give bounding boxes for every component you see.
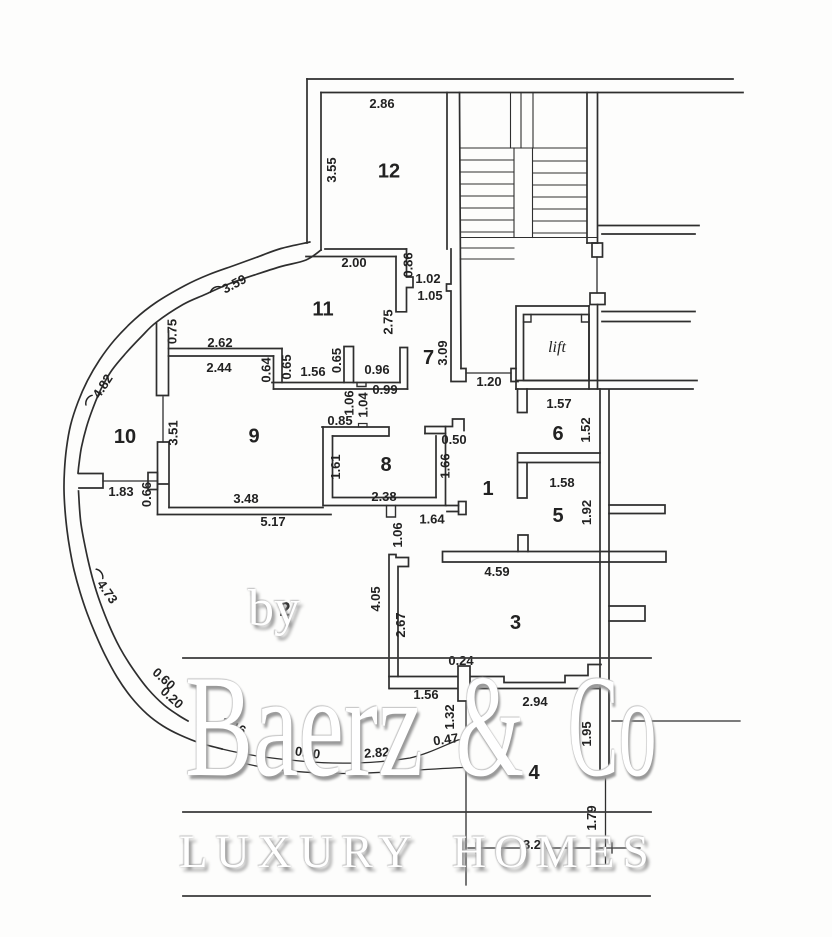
- svg-text:1.92: 1.92: [579, 500, 594, 525]
- svg-text:3.48: 3.48: [233, 491, 258, 506]
- svg-text:2.75: 2.75: [381, 309, 396, 334]
- svg-text:1.06: 1.06: [390, 522, 405, 547]
- svg-text:8: 8: [380, 454, 391, 476]
- svg-text:1.66: 1.66: [438, 453, 453, 478]
- svg-text:1.57: 1.57: [546, 396, 571, 411]
- svg-text:1.20: 1.20: [476, 374, 501, 389]
- svg-text:4.05: 4.05: [368, 586, 383, 611]
- svg-text:0.85: 0.85: [327, 413, 352, 428]
- svg-text:1.64: 1.64: [419, 512, 445, 527]
- svg-text:0.66: 0.66: [139, 482, 154, 507]
- svg-text:0.50: 0.50: [441, 432, 466, 447]
- svg-text:0.96: 0.96: [364, 362, 389, 377]
- svg-text:1.52: 1.52: [578, 417, 593, 442]
- svg-text:2.44: 2.44: [206, 360, 232, 375]
- svg-text:0.99: 0.99: [372, 382, 397, 397]
- svg-text:6: 6: [552, 423, 563, 445]
- svg-text:5.17: 5.17: [260, 514, 285, 529]
- svg-text:1.04: 1.04: [356, 392, 371, 418]
- svg-text:0.64: 0.64: [259, 357, 274, 383]
- svg-text:lift: lift: [548, 339, 566, 356]
- svg-text:0.86: 0.86: [401, 252, 416, 277]
- svg-text:⌒4.82: ⌒4.82: [82, 371, 116, 412]
- svg-text:3.51: 3.51: [166, 420, 181, 445]
- svg-text:0.20: 0.20: [158, 684, 187, 712]
- svg-text:1: 1: [482, 478, 493, 500]
- svg-text:0.75: 0.75: [165, 319, 180, 344]
- svg-text:1.02: 1.02: [415, 271, 440, 286]
- svg-text:2.00: 2.00: [341, 255, 366, 270]
- svg-text:⌒3.59: ⌒3.59: [207, 271, 249, 303]
- svg-text:2.86: 2.86: [369, 96, 394, 111]
- svg-text:7: 7: [423, 347, 434, 369]
- svg-text:2.94: 2.94: [522, 694, 548, 709]
- svg-text:1.56: 1.56: [300, 364, 325, 379]
- svg-text:⌒4.73: ⌒4.73: [86, 566, 121, 607]
- svg-text:11: 11: [312, 299, 333, 321]
- svg-text:1.83: 1.83: [108, 484, 133, 499]
- svg-text:1.06: 1.06: [342, 390, 357, 415]
- svg-text:1.58: 1.58: [549, 475, 574, 490]
- svg-text:3: 3: [510, 612, 521, 634]
- svg-text:0.65: 0.65: [279, 354, 294, 379]
- svg-text:2.67: 2.67: [393, 612, 408, 637]
- svg-text:4: 4: [528, 762, 540, 784]
- svg-text:3.09: 3.09: [435, 340, 450, 365]
- svg-text:1.05: 1.05: [417, 288, 442, 303]
- svg-text:0.65: 0.65: [329, 348, 344, 373]
- svg-text:2.62: 2.62: [207, 335, 232, 350]
- svg-text:4.59: 4.59: [484, 564, 509, 579]
- svg-text:1.32: 1.32: [442, 704, 457, 729]
- svg-text:5: 5: [552, 505, 563, 527]
- svg-text:1.61: 1.61: [328, 454, 343, 479]
- svg-text:9: 9: [248, 426, 259, 448]
- svg-text:3.55: 3.55: [324, 157, 339, 182]
- svg-text:2.38: 2.38: [371, 489, 396, 504]
- svg-text:10: 10: [114, 426, 136, 448]
- svg-text:12: 12: [378, 161, 400, 183]
